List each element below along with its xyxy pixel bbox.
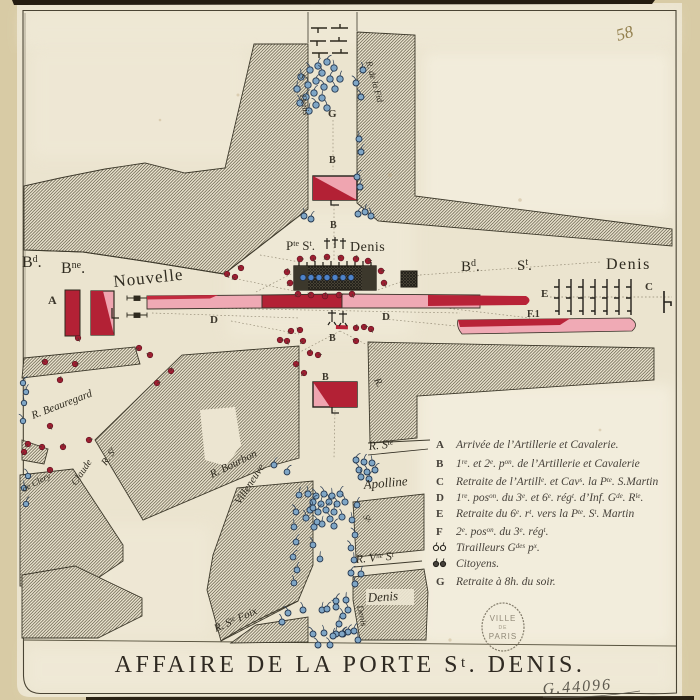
svg-text:1re. et 2e. pon. de l’Artiller: 1re. et 2e. pon. de l’Artillerie et Cava…: [456, 458, 640, 470]
svg-text:Denis: Denis: [606, 256, 651, 273]
svg-text:Denis: Denis: [350, 240, 385, 255]
svg-text:C: C: [436, 476, 444, 488]
svg-text:Bd.: Bd.: [461, 258, 480, 275]
svg-text:Denis: Denis: [366, 588, 398, 605]
svg-text:G: G: [328, 108, 337, 120]
svg-text:D: D: [436, 492, 444, 504]
svg-text:St.: St.: [517, 257, 532, 274]
svg-text:E: E: [436, 508, 443, 520]
svg-text:Arrivée de l’Artillerie et Cav: Arrivée de l’Artillerie et Cavalerie.: [455, 439, 619, 451]
svg-text:DE: DE: [499, 625, 508, 631]
svg-text:A: A: [48, 293, 57, 307]
svg-text:Retraite du 6e. rt. vers la Pt: Retraite du 6e. rt. vers la Pte. St. Mar…: [455, 508, 634, 520]
svg-text:A: A: [436, 439, 444, 451]
svg-text:Retraite de l’Artille. et Cavs: Retraite de l’Artille. et Cavs. la Pte. …: [455, 476, 658, 488]
svg-text:VILLE: VILLE: [490, 614, 517, 623]
svg-text:G: G: [436, 576, 445, 588]
svg-text:2e. poson. du 3e. régt.: 2e. poson. du 3e. régt.: [456, 526, 549, 538]
svg-text:B: B: [330, 220, 337, 231]
svg-text:B: B: [329, 155, 336, 166]
svg-text:Bd.: Bd.: [22, 254, 42, 271]
svg-text:F: F: [436, 526, 443, 538]
svg-text:Retraite à 8h. du soir.: Retraite à 8h. du soir.: [455, 576, 556, 588]
svg-text:Tirailleurs Gdes px.: Tirailleurs Gdes px.: [456, 542, 540, 554]
svg-text:D: D: [382, 311, 390, 323]
svg-text:B: B: [329, 333, 336, 344]
svg-text:Citoyens.: Citoyens.: [456, 558, 499, 570]
svg-text:AFFAIRE DE LA PORTE St. DENIS.: AFFAIRE DE LA PORTE St. DENIS.: [115, 652, 586, 678]
svg-text:B: B: [436, 458, 444, 470]
svg-text:C: C: [645, 281, 653, 293]
svg-text:D: D: [210, 314, 218, 326]
svg-text:B: B: [322, 372, 329, 383]
svg-text:F.1: F.1: [527, 309, 540, 320]
svg-text:E: E: [541, 288, 548, 300]
svg-text:PARIS: PARIS: [489, 632, 517, 641]
